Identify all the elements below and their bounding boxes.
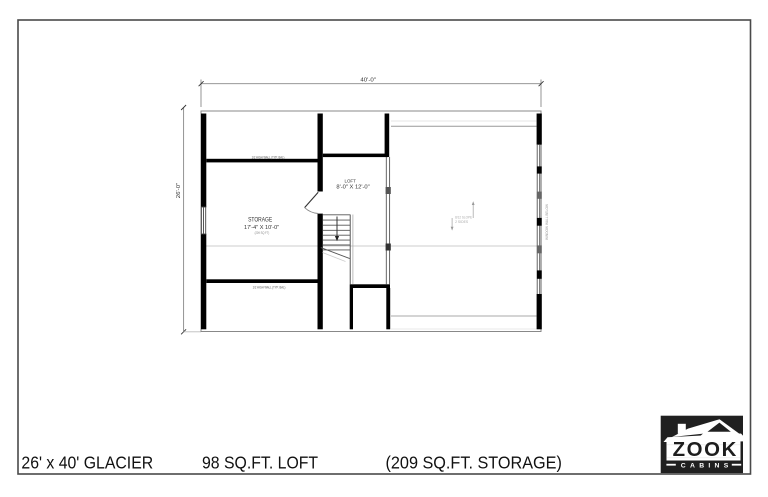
svg-text:26' x 40' GLACIER: 26' x 40' GLACIER bbox=[21, 453, 153, 473]
svg-text:8/12 SLOPE: 8/12 SLOPE bbox=[455, 216, 473, 220]
svg-text:(209 SQ FT): (209 SQ FT) bbox=[255, 230, 270, 235]
svg-text:WINDOW WALL BELOW: WINDOW WALL BELOW bbox=[545, 203, 549, 240]
svg-text:26'-0": 26'-0" bbox=[176, 183, 182, 199]
svg-text:1/2 HIGH WALL (TYP. BAL): 1/2 HIGH WALL (TYP. BAL) bbox=[252, 155, 285, 159]
svg-text:40'-0": 40'-0" bbox=[360, 78, 376, 84]
svg-text:2 SIDES: 2 SIDES bbox=[455, 220, 469, 224]
svg-text:98 SQ.FT. LOFT: 98 SQ.FT. LOFT bbox=[202, 453, 318, 473]
svg-text:STORAGE: STORAGE bbox=[248, 217, 272, 224]
svg-text:(209 SQ.FT. STORAGE): (209 SQ.FT. STORAGE) bbox=[386, 453, 562, 473]
svg-text:8'-0" X 12'-0": 8'-0" X 12'-0" bbox=[336, 185, 369, 191]
svg-text:ZOOK: ZOOK bbox=[673, 439, 737, 461]
svg-text:1/2 HIGH WALL (TYP. BAL): 1/2 HIGH WALL (TYP. BAL) bbox=[253, 286, 286, 290]
